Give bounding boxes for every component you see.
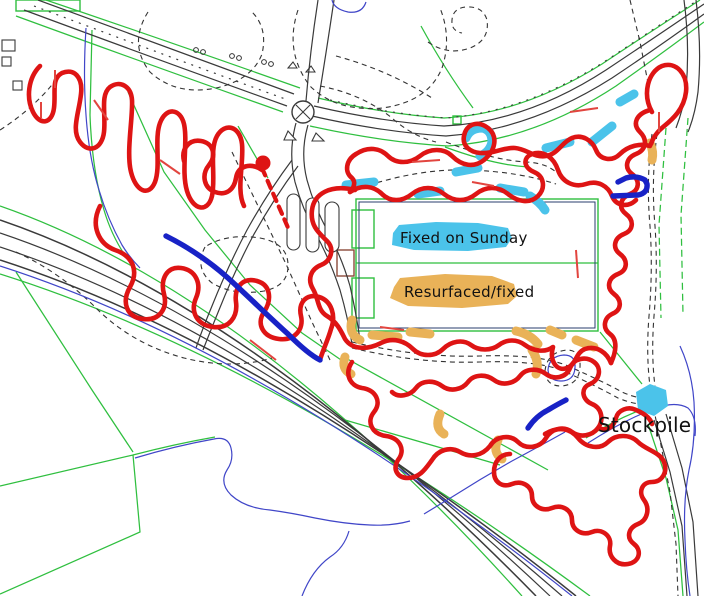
field-line <box>659 128 666 318</box>
tree-symbols <box>194 48 315 72</box>
map-canvas: Fixed on Sunday Resurfaced/fixed Stockpi… <box>0 0 704 596</box>
direction-arrow <box>576 250 578 278</box>
blue-trail-segment <box>528 400 566 428</box>
resurfaced-segment <box>372 335 398 337</box>
building <box>2 40 15 51</box>
fixed-segment <box>620 94 634 102</box>
start-point-dot <box>256 156 271 171</box>
fixed-segment <box>456 168 478 172</box>
field-line <box>0 455 140 594</box>
road-edge <box>306 0 318 101</box>
fixed-on-sunday-label: Fixed on Sunday <box>400 229 528 247</box>
path-dashed <box>336 56 432 98</box>
stream <box>302 531 349 596</box>
resurfaced-segment <box>410 332 430 334</box>
stream <box>135 438 410 525</box>
road-edge <box>318 0 334 103</box>
fixed-segment <box>346 182 374 185</box>
field-line <box>16 272 133 452</box>
trail-segment <box>183 141 262 193</box>
field-line <box>681 118 688 315</box>
building <box>2 57 11 66</box>
road-edge <box>654 420 687 596</box>
start-connector-dashed <box>262 168 289 230</box>
stockpile-label: Stockpile <box>598 413 691 437</box>
field-line <box>0 274 590 596</box>
woodland-dashed <box>428 7 487 51</box>
field-line <box>318 0 700 118</box>
trail-segment <box>647 65 686 144</box>
pitch-inner-outline <box>359 202 595 328</box>
pond-outline <box>332 0 366 12</box>
resurfaced-fixed-label: Resurfaced/fixed <box>404 283 534 301</box>
trail-segment <box>494 429 665 564</box>
track-dashed <box>352 342 654 398</box>
building-outline <box>352 210 374 248</box>
trail-map: Fixed on Sunday Resurfaced/fixed Stockpi… <box>0 0 704 596</box>
field-line <box>0 206 522 596</box>
streams-layer <box>0 0 695 596</box>
sports-field-outline <box>356 199 598 331</box>
direction-arrow <box>472 182 494 186</box>
highway-line <box>0 260 576 596</box>
road-hatching <box>34 6 288 100</box>
track-dashed <box>653 134 657 386</box>
road-hatching <box>330 0 698 118</box>
resurfaced-segment <box>438 414 444 434</box>
traffic-island <box>312 133 324 141</box>
road-edge <box>24 10 287 106</box>
field-line <box>133 437 215 455</box>
boundary-dashed <box>16 252 272 364</box>
direction-arrow <box>250 340 276 360</box>
blue-trail-segment <box>613 177 647 196</box>
road-edge <box>38 0 294 94</box>
track-dashed <box>648 134 652 386</box>
direction-arrow <box>160 160 180 174</box>
parking-loop <box>287 194 300 250</box>
building <box>13 81 22 90</box>
field-parcel <box>16 0 80 11</box>
woodland-dashed <box>293 8 446 109</box>
fixed-segment <box>592 126 612 142</box>
resurfaced-segment <box>550 330 562 335</box>
road-edge <box>688 0 700 132</box>
